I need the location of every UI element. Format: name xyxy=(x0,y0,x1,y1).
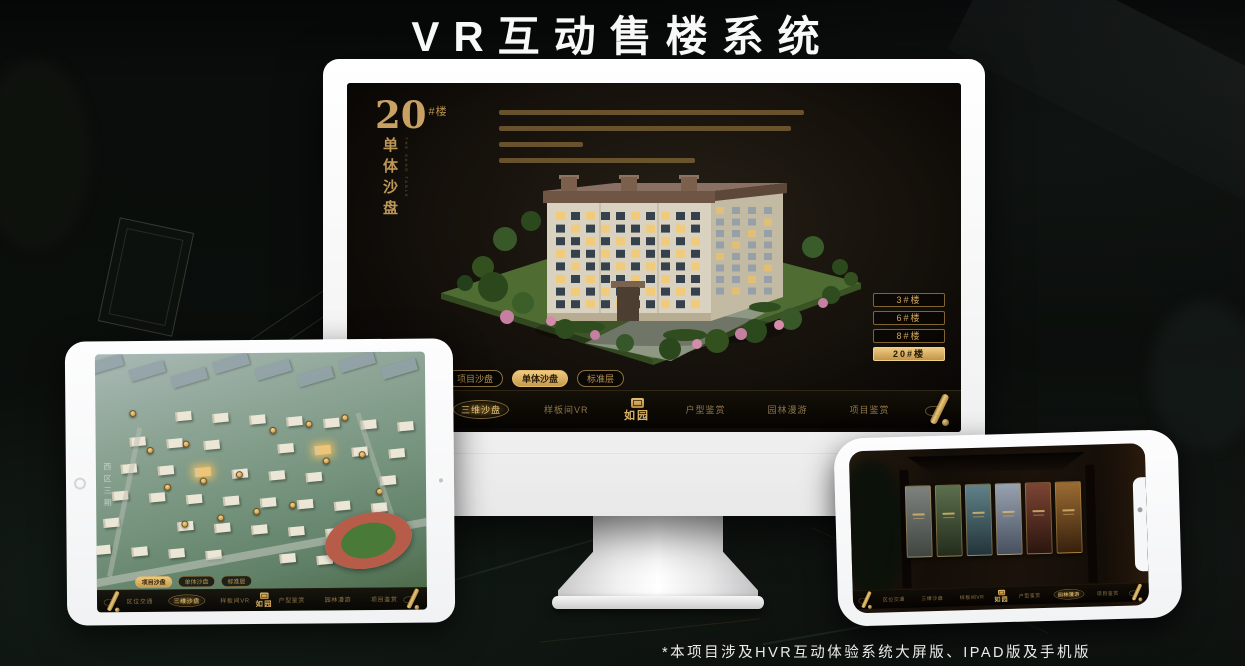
nav-item[interactable]: 园林漫游 xyxy=(761,401,815,418)
building-number-badge[interactable] xyxy=(217,514,224,521)
aerial-building xyxy=(260,497,277,507)
nav-item[interactable]: 项目鉴赏 xyxy=(1093,588,1123,598)
logo-text: 如园 xyxy=(624,410,650,421)
view-tab-group: 项目沙盘单体沙盘标准层 xyxy=(447,369,633,387)
building-number-badge[interactable] xyxy=(323,457,330,464)
building-number-badge[interactable] xyxy=(236,471,243,478)
scroll-menu-icon[interactable] xyxy=(1129,583,1144,602)
aerial-building xyxy=(249,414,266,424)
aerial-building xyxy=(334,501,351,511)
cloud-swirl-icon xyxy=(1129,590,1137,596)
nav-item[interactable]: 三维沙盘 xyxy=(453,400,509,419)
pavilion-column xyxy=(1085,465,1097,583)
front-camera-icon xyxy=(1137,507,1142,512)
home-button[interactable] xyxy=(74,478,86,490)
distant-building xyxy=(380,358,418,380)
distant-building xyxy=(95,353,124,375)
main-navbar: 区位交通三维沙盘样板间VR 如园 户型鉴赏园林漫游项目鉴赏 xyxy=(97,587,427,612)
nav-item[interactable]: 项目鉴赏 xyxy=(843,401,897,418)
building-number-badge[interactable] xyxy=(253,508,260,515)
aerial-building xyxy=(214,523,231,533)
building-3d-render xyxy=(435,135,865,365)
aerial-building xyxy=(166,438,183,448)
aerial-building xyxy=(195,467,212,477)
aerial-building xyxy=(288,526,305,536)
aerial-building xyxy=(158,465,175,475)
building-number-badge[interactable] xyxy=(129,410,136,417)
region-label: 西区三期 xyxy=(102,462,113,510)
aerial-building xyxy=(279,553,296,563)
distant-building xyxy=(338,352,376,373)
page-title: VR互动售楼系统 xyxy=(0,0,1245,64)
tablet-screen: 西区三期 项目沙盘单体沙盘标准层 区位交通三维沙盘样板间VR 如园 户型鉴赏园林… xyxy=(95,352,427,613)
aerial-building xyxy=(223,496,240,506)
tablet-device: 西区三期 项目沙盘单体沙盘标准层 区位交通三维沙盘样板间VR 如园 户型鉴赏园林… xyxy=(65,338,455,625)
view-tab[interactable]: 单体沙盘 xyxy=(512,370,568,387)
floor-button[interactable]: 8#楼 xyxy=(873,329,945,343)
ruyuan-logo: 如园 xyxy=(256,592,273,607)
nav-item[interactable]: 样板间VR xyxy=(537,401,596,418)
aerial-building xyxy=(323,418,340,428)
view-tab[interactable]: 标准层 xyxy=(221,575,252,586)
building-number-badge[interactable] xyxy=(289,502,296,509)
aerial-building xyxy=(277,443,294,453)
headline-vertical-title: 单体沙盘 xyxy=(379,137,400,221)
floor-button-group: 3#楼6#楼8#楼20#楼 xyxy=(873,293,945,361)
aerial-building xyxy=(314,445,331,455)
nav-item[interactable]: 户型鉴赏 xyxy=(274,594,310,606)
scroll-menu-icon[interactable] xyxy=(104,590,121,612)
view-tab[interactable]: 标准层 xyxy=(577,370,624,387)
nav-item[interactable]: 户型鉴赏 xyxy=(678,401,732,418)
ruyuan-logo: 如园 xyxy=(994,590,1009,603)
panorama-gallery xyxy=(905,481,1083,558)
aerial-building xyxy=(251,524,268,534)
cloud-swirl-icon xyxy=(104,599,114,606)
view-tab[interactable]: 单体沙盘 xyxy=(178,576,215,588)
panorama-card[interactable] xyxy=(965,483,993,556)
distant-building xyxy=(254,359,292,381)
aerial-building xyxy=(175,411,192,421)
nav-item[interactable]: 园林漫游 xyxy=(320,594,356,606)
nav-item[interactable]: 三维沙盘 xyxy=(168,594,205,607)
building-number: 20 xyxy=(375,98,427,133)
panorama-card[interactable] xyxy=(1025,482,1053,555)
building-number-suffix: #楼 xyxy=(429,103,448,119)
panorama-card[interactable] xyxy=(995,483,1023,556)
phone-screen: 区位交通三维沙盘样板间VR 如园 户型鉴赏园林漫游项目鉴赏 xyxy=(849,443,1149,613)
scroll-menu-icon[interactable] xyxy=(403,587,420,610)
distant-building xyxy=(296,366,334,388)
view-tab-group: 项目沙盘单体沙盘标准层 xyxy=(135,574,427,588)
monitor-stand-base xyxy=(552,596,764,609)
camera-dot xyxy=(439,478,443,482)
nav-group-left: 区位交通三维沙盘样板间VR xyxy=(122,594,254,608)
scroll-menu-icon[interactable] xyxy=(858,590,873,609)
phone-device: 区位交通三维沙盘样板间VR 如园 户型鉴赏园林漫游项目鉴赏 xyxy=(833,429,1182,627)
logo-text: 如园 xyxy=(994,596,1008,602)
aerial-building xyxy=(168,548,185,558)
poster-stage: VR互动售楼系统 *本项目涉及HVR互动体验系统大屏版、IPAD版及手机版 20… xyxy=(0,0,1245,666)
building-number-badge[interactable] xyxy=(147,447,154,454)
scroll-menu-icon[interactable] xyxy=(925,393,951,427)
nav-item[interactable]: 项目鉴赏 xyxy=(366,593,402,605)
cloud-swirl-icon xyxy=(858,598,866,604)
nav-item[interactable]: 区位交通 xyxy=(122,595,158,607)
distant-building xyxy=(170,367,208,389)
tablet-bottom-ui: 项目沙盘单体沙盘标准层 区位交通三维沙盘样板间VR 如园 户型鉴赏园林漫游项目鉴… xyxy=(97,574,427,613)
floor-button[interactable]: 20#楼 xyxy=(873,347,945,361)
aerial-building xyxy=(286,416,303,426)
building-number-badge[interactable] xyxy=(200,477,207,484)
view-tab[interactable]: 项目沙盘 xyxy=(135,576,172,588)
aerial-building xyxy=(95,545,111,555)
panorama-card[interactable] xyxy=(905,485,933,558)
aerial-building xyxy=(186,494,203,504)
building-number-badge[interactable] xyxy=(305,421,312,428)
panorama-card[interactable] xyxy=(935,484,963,557)
distant-building xyxy=(128,360,166,382)
aerial-building xyxy=(297,499,314,509)
seal-icon xyxy=(998,590,1005,596)
seal-icon xyxy=(631,398,644,408)
aerial-building xyxy=(306,472,323,482)
aerial-building xyxy=(131,546,148,556)
nav-item[interactable]: 三维沙盘 xyxy=(917,593,947,603)
seal-icon xyxy=(260,592,269,599)
nav-item[interactable]: 户型鉴赏 xyxy=(1015,590,1045,600)
logo-text: 如园 xyxy=(256,600,273,607)
distant-building xyxy=(212,352,250,374)
nav-item[interactable]: 样板间VR xyxy=(956,592,988,602)
aerial-building xyxy=(269,470,286,480)
ruyuan-logo: 如园 xyxy=(624,398,650,421)
intro-text-line xyxy=(499,126,791,131)
pavilion-roof-silhouette xyxy=(907,452,1085,474)
aerial-building xyxy=(203,440,220,450)
building-number-badge[interactable] xyxy=(341,414,348,421)
view-tab[interactable]: 项目沙盘 xyxy=(447,370,503,387)
intro-text-line xyxy=(499,110,804,115)
aerial-building xyxy=(212,413,229,423)
cloud-swirl-icon xyxy=(403,596,413,603)
nav-item[interactable]: 样板间VR xyxy=(216,595,255,607)
aerial-building xyxy=(388,448,405,458)
phone-notch xyxy=(1133,477,1149,571)
cloud-swirl-icon xyxy=(925,406,940,416)
floor-button[interactable]: 3#楼 xyxy=(873,293,945,307)
nav-group-right: 户型鉴赏园林漫游项目鉴赏 xyxy=(678,401,896,418)
nav-item[interactable]: 园林漫游 xyxy=(1053,589,1084,600)
nav-group-right: 户型鉴赏园林漫游项目鉴赏 xyxy=(274,593,402,605)
aerial-building xyxy=(149,492,166,502)
floor-button[interactable]: 6#楼 xyxy=(873,311,945,325)
footnote-text: *本项目涉及HVR互动体验系统大屏版、IPAD版及手机版 xyxy=(662,641,1091,662)
building-number-badge[interactable] xyxy=(164,484,171,491)
panorama-card[interactable] xyxy=(1055,481,1083,554)
headline-vertical-subtitle: THE SAND TABLE xyxy=(404,137,409,221)
aerial-building xyxy=(397,421,414,431)
building-number-badge[interactable] xyxy=(183,441,190,448)
building-number-badge[interactable] xyxy=(270,427,277,434)
nav-group-right: 户型鉴赏园林漫游项目鉴赏 xyxy=(1015,588,1123,601)
building-number-badge[interactable] xyxy=(359,451,366,458)
nav-item[interactable]: 区位交通 xyxy=(879,594,909,604)
nav-group-left: 区位交通三维沙盘样板间VR xyxy=(879,592,988,604)
building-number-badge[interactable] xyxy=(181,521,188,528)
